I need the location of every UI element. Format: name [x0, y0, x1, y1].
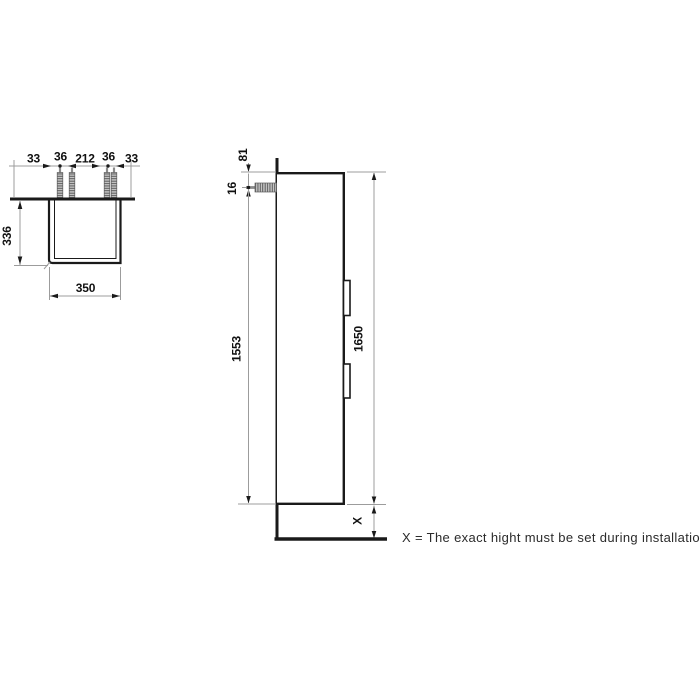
dim-label-36-right: 36 [102, 150, 115, 164]
dim-label-350: 350 [76, 281, 96, 295]
door-handle-top [344, 281, 351, 316]
dim-label-212: 212 [75, 152, 95, 166]
dim-label-33-right: 33 [125, 152, 138, 166]
dim-label-1650: 1650 [352, 326, 366, 352]
installation-note: X = The exact hight must be set during i… [402, 530, 700, 545]
cabinet-installation-drawing: 33 36 212 36 33 [0, 0, 700, 700]
dim-label-33-left: 33 [27, 152, 40, 166]
dim-label-16: 16 [225, 182, 239, 195]
dimension-dot-icon [58, 164, 61, 167]
dim-label-81: 81 [236, 148, 250, 161]
side-cabinet-body [277, 173, 344, 504]
dim-label-336: 336 [0, 226, 14, 246]
background [0, 0, 700, 700]
technical-drawing-page: 33 36 212 36 33 [0, 0, 700, 700]
dim-label-36-left: 36 [54, 150, 67, 164]
dimension-dot-icon [247, 186, 250, 189]
door-handle-bottom [344, 364, 351, 398]
dim-label-1553: 1553 [230, 336, 244, 362]
dim-label-x: X [351, 517, 365, 525]
dimension-dot-icon [106, 164, 109, 167]
